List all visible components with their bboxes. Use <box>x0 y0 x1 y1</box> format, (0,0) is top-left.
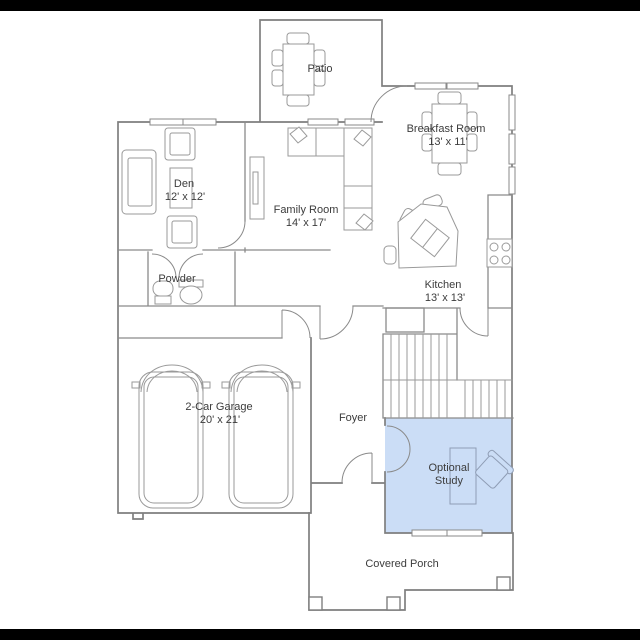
breakfast-window <box>447 83 478 89</box>
den-label: Den <box>174 178 194 190</box>
porch-column <box>497 577 510 590</box>
patio-label: Patio <box>307 63 332 75</box>
powder-label: Powder <box>158 273 196 285</box>
right-wall-window <box>509 95 515 130</box>
den-window <box>183 119 216 125</box>
family-window <box>345 119 374 125</box>
family-window <box>308 119 338 125</box>
letterbox-bottom <box>0 629 640 640</box>
garage-label: 2-Car Garage <box>185 401 252 413</box>
study-label-1: Optional <box>429 462 470 474</box>
toilet-bowl <box>180 286 202 304</box>
den-dims: 12' x 12' <box>165 191 205 203</box>
breakfast-dims: 13' x 11' <box>428 136 467 148</box>
family-dims: 14' x 17' <box>286 217 326 229</box>
right-wall-window <box>509 134 515 164</box>
garage-dims: 20' x 21' <box>200 414 240 426</box>
study-label-2: Study <box>435 475 464 487</box>
den-window <box>150 119 183 125</box>
kitchen-dims: 13' x 13' <box>425 292 465 304</box>
study-window <box>412 530 447 536</box>
kitchen-label: Kitchen <box>425 279 462 291</box>
right-wall-window <box>509 167 515 194</box>
foyer-label: Foyer <box>339 412 367 424</box>
floor-plan-svg: Patio Breakfast Room 13' x 11' Den 12' x… <box>0 0 640 640</box>
breakfast-label: Breakfast Room <box>407 123 486 135</box>
porch-label: Covered Porch <box>365 558 438 570</box>
floor-plan-page: Patio Breakfast Room 13' x 11' Den 12' x… <box>0 0 640 640</box>
study-window <box>447 530 482 536</box>
breakfast-window <box>415 83 446 89</box>
porch-column <box>309 597 322 610</box>
letterbox-top <box>0 0 640 11</box>
porch-column <box>387 597 400 610</box>
family-label: Family Room <box>274 204 339 216</box>
